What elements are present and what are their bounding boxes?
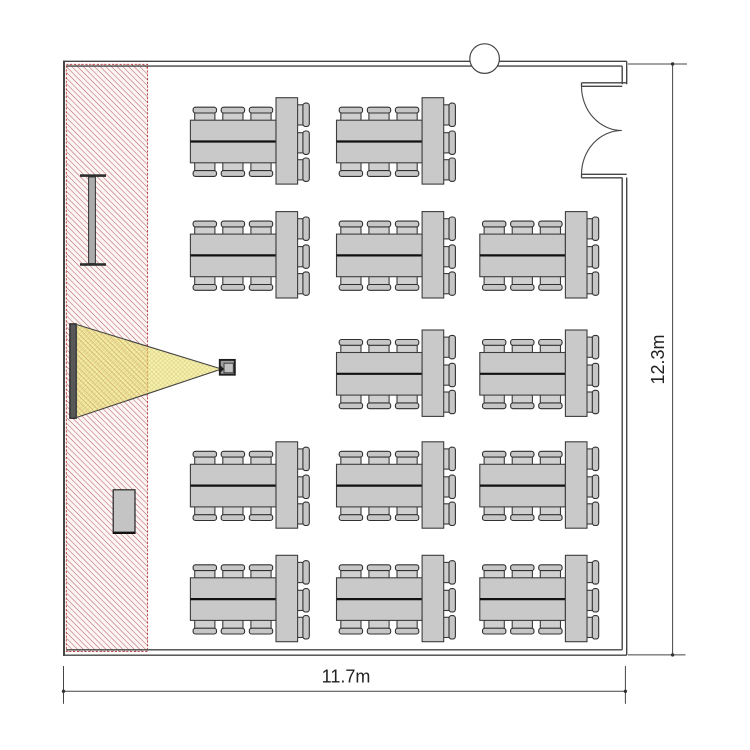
svg-text:11.7m: 11.7m [322,666,371,686]
svg-text:12.3m: 12.3m [648,334,668,384]
